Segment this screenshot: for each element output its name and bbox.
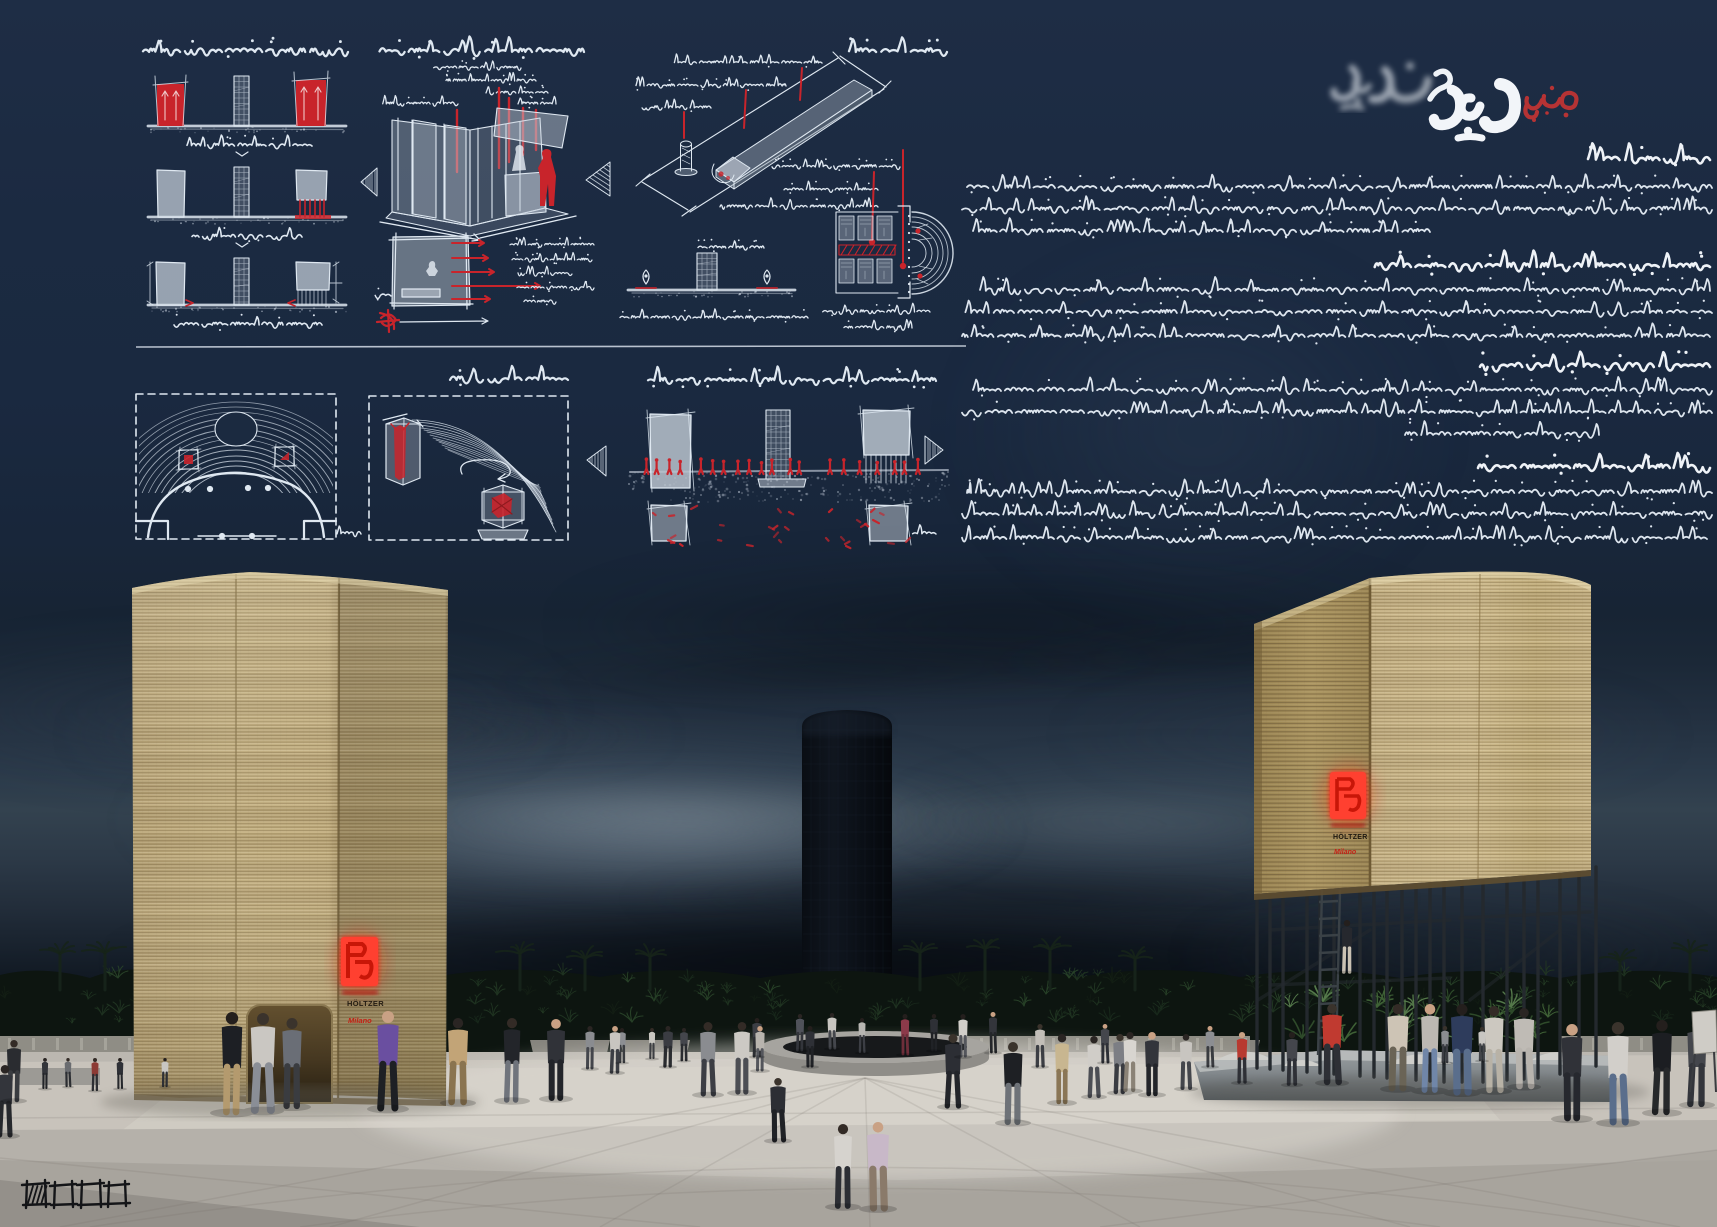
svg-text:Milano: Milano bbox=[1334, 849, 1357, 856]
svg-text:HÖLTZER: HÖLTZER bbox=[347, 999, 384, 1008]
svg-text:Milano: Milano bbox=[348, 1016, 372, 1025]
svg-text:HÖLTZER: HÖLTZER bbox=[1333, 832, 1368, 841]
